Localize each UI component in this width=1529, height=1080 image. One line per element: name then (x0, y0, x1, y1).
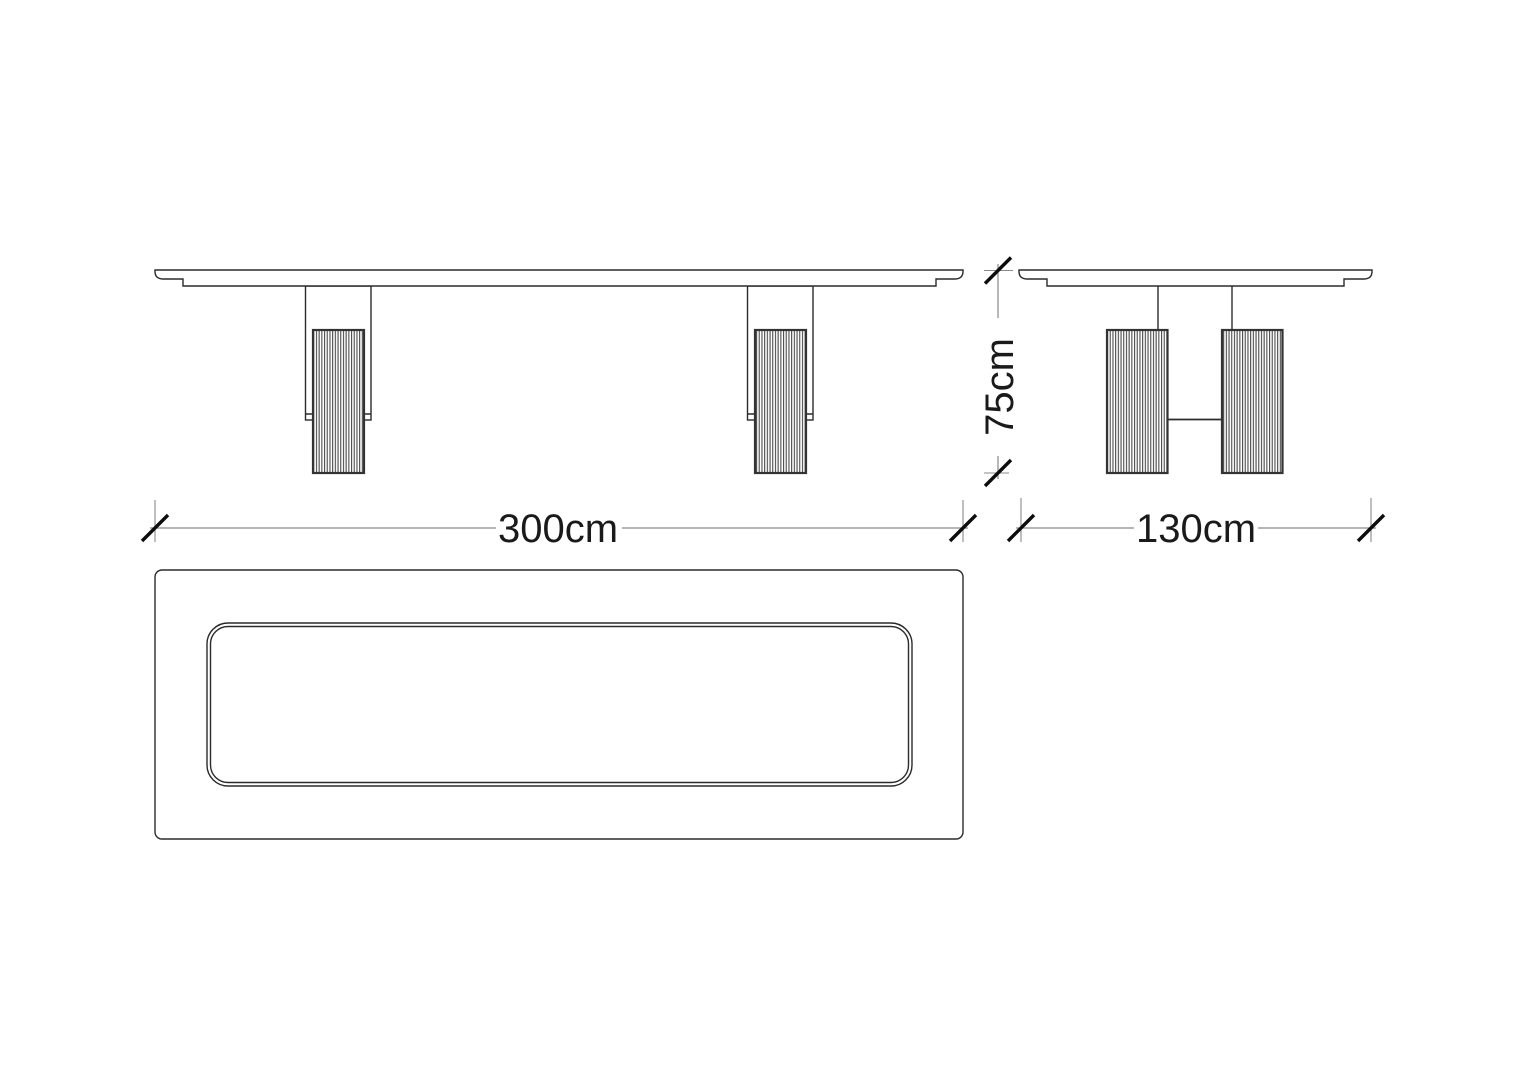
dimension-label-length: 300cm (498, 507, 618, 551)
technical-drawing-svg: 300cm 130cm 75cm (0, 0, 1529, 1080)
top-view-tabletop-outline (155, 570, 963, 839)
dimension-height: 75cm (977, 258, 1022, 487)
front-view (155, 270, 963, 473)
front-right-leg-column (755, 330, 806, 473)
dimension-label-height: 75cm (978, 338, 1022, 436)
side-tabletop (1019, 270, 1372, 286)
side-left-column (1107, 330, 1168, 473)
side-view (1019, 270, 1372, 473)
drawing-canvas: 300cm 130cm 75cm (0, 0, 1529, 1080)
dimension-depth: 130cm (1008, 498, 1384, 551)
front-left-leg-column (313, 330, 364, 473)
dimension-label-depth: 130cm (1136, 507, 1256, 551)
front-tabletop (155, 270, 963, 286)
dimension-length: 300cm (142, 500, 976, 551)
top-view (155, 570, 963, 839)
side-right-column (1222, 330, 1283, 473)
